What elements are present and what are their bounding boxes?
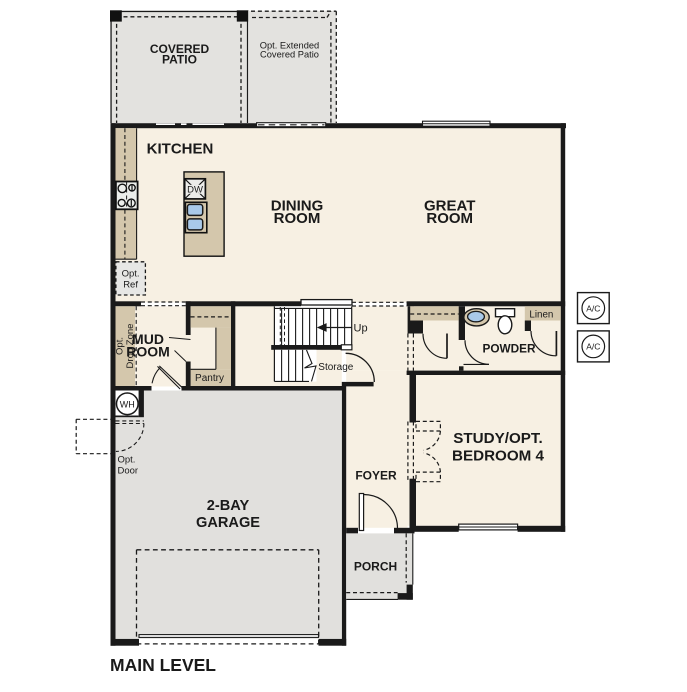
svg-text:GARAGE: GARAGE xyxy=(196,515,260,531)
svg-text:FOYER: FOYER xyxy=(355,469,397,483)
svg-text:ROOM: ROOM xyxy=(274,210,321,227)
svg-text:Opt.: Opt. xyxy=(115,337,126,355)
svg-text:Pantry: Pantry xyxy=(195,373,224,384)
svg-text:Ref: Ref xyxy=(123,280,138,291)
svg-text:Opt.: Opt. xyxy=(122,269,140,280)
svg-text:ROOM: ROOM xyxy=(126,344,170,360)
svg-text:DW: DW xyxy=(187,184,203,195)
svg-text:A/C: A/C xyxy=(586,342,600,352)
svg-text:2-BAY: 2-BAY xyxy=(207,498,250,514)
svg-text:Opt.: Opt. xyxy=(118,455,136,466)
svg-text:PATIO: PATIO xyxy=(162,53,197,67)
svg-text:Up: Up xyxy=(354,323,368,335)
svg-text:MAIN LEVEL: MAIN LEVEL xyxy=(110,655,216,675)
svg-text:WH: WH xyxy=(120,399,135,409)
svg-text:POWDER: POWDER xyxy=(482,341,536,355)
svg-text:Storage: Storage xyxy=(318,362,353,373)
svg-text:KITCHEN: KITCHEN xyxy=(147,141,214,158)
svg-text:STUDY/OPT.: STUDY/OPT. xyxy=(453,430,542,447)
svg-text:Door: Door xyxy=(118,466,139,477)
svg-text:BEDROOM 4: BEDROOM 4 xyxy=(452,447,545,464)
svg-text:A/C: A/C xyxy=(586,303,600,313)
svg-text:Linen: Linen xyxy=(529,310,553,321)
svg-text:ROOM: ROOM xyxy=(426,210,473,227)
svg-text:Covered Patio: Covered Patio xyxy=(260,49,319,59)
svg-text:PORCH: PORCH xyxy=(354,559,397,573)
